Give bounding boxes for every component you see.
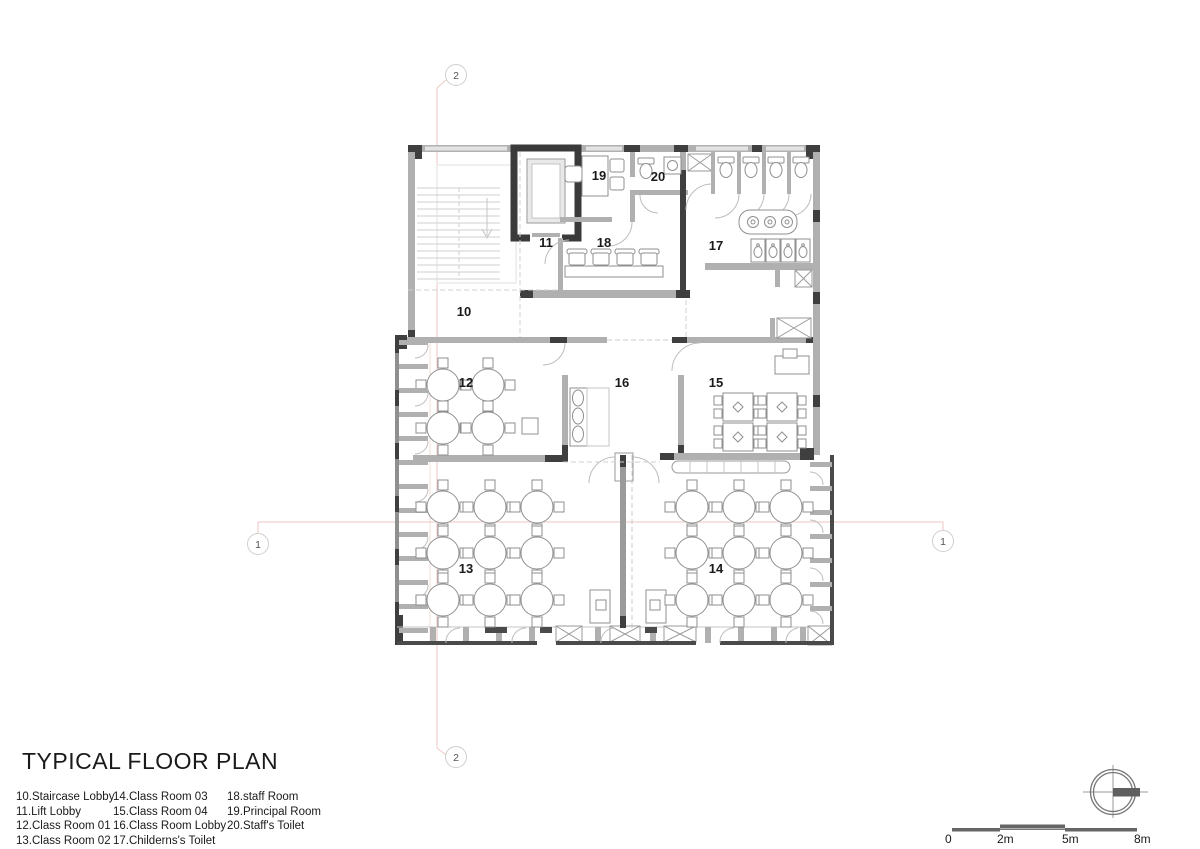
room-label-15: 15: [709, 375, 723, 390]
legend-item: 16.Class Room Lobby: [113, 819, 226, 834]
legend-item: 10.Staircase Lobby: [16, 790, 114, 805]
grid-marker-top: 2: [446, 65, 467, 86]
page-title: TYPICAL FLOOR PLAN: [22, 748, 278, 775]
room-label-18: 18: [597, 235, 611, 250]
classroom-12-tables: [416, 358, 538, 455]
legend-column-1: 10.Staircase Lobby 11.Lift Lobby 12.Clas…: [16, 790, 114, 848]
staircase: [417, 165, 516, 283]
legend-item: 20.Staff's Toilet: [227, 819, 321, 834]
lobby-16-shelf: [570, 388, 609, 446]
scale-label-8m: 8m: [1134, 832, 1151, 846]
room-label-11: 11: [539, 235, 553, 250]
svg-text:2: 2: [453, 70, 459, 82]
floor-plan-sheet: 10 11 12 13 14 15 16 17 18 19 20 2 2 1 1: [0, 0, 1200, 849]
legend-item: 12.Class Room 01: [16, 819, 114, 834]
room-label-14: 14: [709, 561, 724, 576]
legend-item: 18.staff Room: [227, 790, 321, 805]
scale-bar: 0 2m 5m 8m: [945, 825, 1151, 847]
lower-block-bottom-wall: [397, 626, 833, 645]
classroom-15-furniture: [714, 349, 809, 451]
legend-item: 19.Principal Room: [227, 805, 321, 820]
grid-marker-right: 1: [933, 531, 954, 552]
scale-label-2m: 2m: [997, 832, 1014, 846]
grid-marker-left: 1: [248, 534, 269, 555]
floor-plan-drawing: 10 11 12 13 14 15 16 17 18 19 20 2 2 1 1: [0, 0, 1200, 849]
room-label-19: 19: [592, 168, 606, 183]
room-label-17: 17: [709, 238, 723, 253]
room-label-12: 12: [459, 375, 473, 390]
room-label-10: 10: [457, 304, 471, 319]
legend-item: 13.Class Room 02: [16, 834, 114, 849]
legend-column-3: 18.staff Room 19.Principal Room 20.Staff…: [227, 790, 321, 834]
scale-label-0: 0: [945, 832, 952, 846]
room-label-16: 16: [615, 375, 629, 390]
classroom-14-tables: [665, 461, 813, 627]
grid-marker-bottom: 2: [446, 747, 467, 768]
stair-down-arrow-icon: [482, 198, 492, 238]
legend-item: 15.Class Room 04: [113, 805, 226, 820]
north-compass-icon: [1083, 765, 1148, 818]
room-label-13: 13: [459, 561, 473, 576]
classroom-13-tables: [416, 480, 564, 627]
scale-label-5m: 5m: [1062, 832, 1079, 846]
svg-text:1: 1: [255, 539, 261, 551]
legend-item: 14.Class Room 03: [113, 790, 226, 805]
legend-item: 17.Childerns's Toilet: [113, 834, 226, 849]
svg-text:2: 2: [453, 752, 459, 764]
legend-column-2: 14.Class Room 03 15.Class Room 04 16.Cla…: [113, 790, 226, 848]
svg-text:1: 1: [940, 536, 946, 548]
childrens-toilet-17-fixtures: [705, 152, 817, 287]
room-label-20: 20: [651, 169, 665, 184]
lift-shaft: [514, 148, 578, 242]
staff-room-18-furniture: [565, 249, 663, 277]
lower-block-right-wall: [810, 455, 834, 645]
legend-item: 11.Lift Lobby: [16, 805, 114, 820]
